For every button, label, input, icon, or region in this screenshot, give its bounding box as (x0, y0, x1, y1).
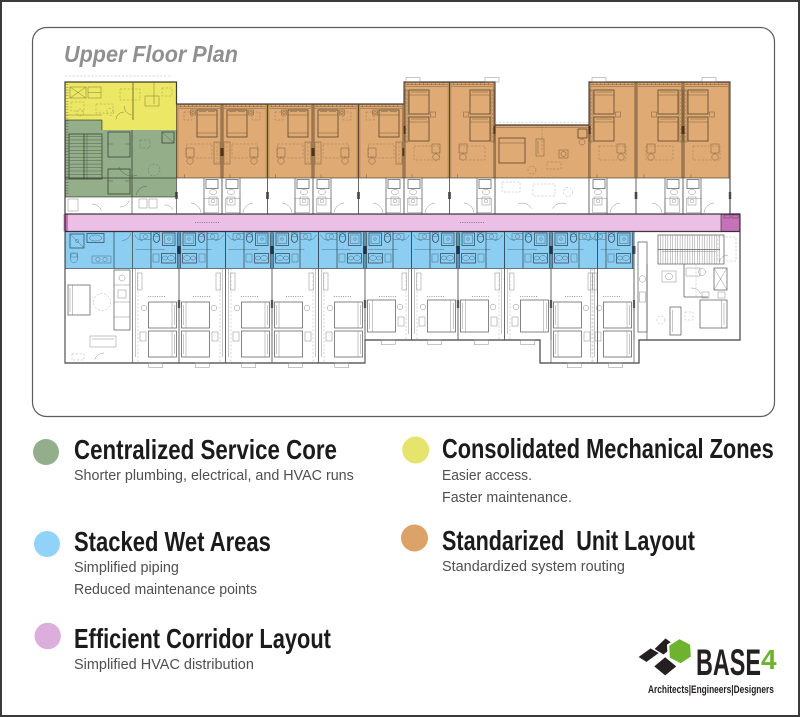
svg-text:Architects|Engineers|Designers: Architects|Engineers|Designers (648, 684, 774, 696)
svg-text:Efficient Corridor Layout: Efficient Corridor Layout (74, 623, 331, 654)
svg-text:Standardized system routing: Standardized system routing (442, 559, 625, 575)
svg-text:4: 4 (761, 644, 777, 675)
svg-text:Stacked Wet Areas: Stacked Wet Areas (74, 527, 271, 558)
svg-text:Centralized Service Core: Centralized Service Core (74, 435, 337, 466)
svg-text:Upper Floor Plan: Upper Floor Plan (64, 41, 238, 67)
svg-text:Simplified piping: Simplified piping (74, 560, 179, 576)
svg-text:Shorter plumbing, electrical,: Shorter plumbing, electrical, and HVAC r… (74, 468, 354, 484)
svg-text:Simplified HVAC distribution: Simplified HVAC distribution (74, 657, 254, 673)
svg-text:Standarized Unit Layout: Standarized Unit Layout (442, 525, 695, 556)
svg-text:Consolidated Mechanical Zones: Consolidated Mechanical Zones (442, 433, 774, 464)
svg-text:Faster maintenance.: Faster maintenance. (442, 490, 572, 506)
svg-text:BASE: BASE (696, 641, 761, 683)
svg-text:Easier access.: Easier access. (442, 468, 532, 485)
svg-text:Reduced maintenance points: Reduced maintenance points (74, 582, 257, 598)
